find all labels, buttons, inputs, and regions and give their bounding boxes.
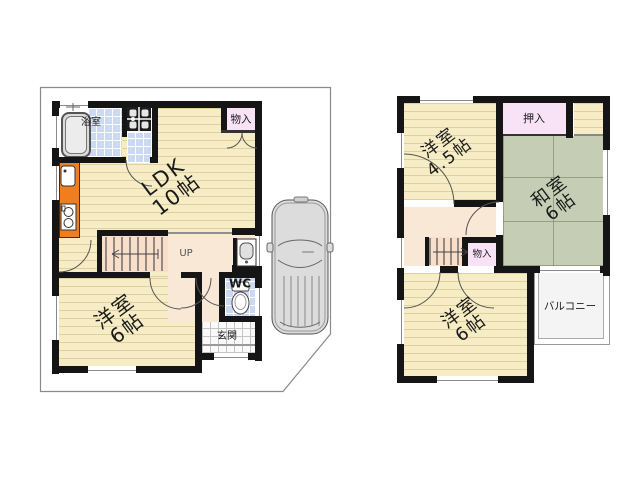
wall xyxy=(233,238,237,268)
window-mark xyxy=(60,101,88,108)
wall xyxy=(462,237,503,243)
wall xyxy=(600,266,610,273)
wall xyxy=(181,272,195,278)
window-mark xyxy=(52,296,59,340)
wall xyxy=(219,316,262,322)
window-mark xyxy=(603,150,610,215)
window-mark xyxy=(420,96,473,103)
window-mark xyxy=(397,238,404,268)
bathroom-tile xyxy=(88,108,122,157)
window-mark xyxy=(52,166,59,200)
closet-line xyxy=(503,134,566,136)
window-mark xyxy=(255,236,262,266)
wall xyxy=(496,96,503,202)
wall xyxy=(232,228,262,235)
label-genkan: 玄関 xyxy=(217,332,237,343)
floorplan: LDK 10帖 洋室 6帖 浴室 物入 WC UP 玄関 xyxy=(0,0,635,480)
wall xyxy=(152,101,158,163)
genkan-step-line xyxy=(202,344,255,346)
balcony-door-mark xyxy=(540,266,600,273)
wall xyxy=(527,266,534,383)
window-mark xyxy=(52,116,59,148)
counter-line xyxy=(168,232,232,234)
window-mark xyxy=(397,300,404,344)
wall xyxy=(232,265,262,272)
stairs-2f xyxy=(429,237,462,266)
niche-line xyxy=(574,134,603,136)
wall xyxy=(52,272,150,278)
wall xyxy=(219,272,225,322)
window-mark xyxy=(437,376,498,383)
kitchen-counter xyxy=(59,160,80,238)
stairs-1f xyxy=(102,236,168,272)
washroom-tile xyxy=(127,133,152,163)
label-balcony: バルコニー xyxy=(544,301,596,312)
window-mark xyxy=(88,366,136,373)
label-up: UP xyxy=(179,249,192,260)
wall xyxy=(97,230,168,236)
wall xyxy=(566,96,573,138)
window-mark xyxy=(255,288,262,316)
wall xyxy=(97,230,102,272)
label-storage-1f: 物入 xyxy=(231,114,252,125)
car-top-view xyxy=(267,197,333,334)
closet-line xyxy=(221,130,255,133)
window-mark xyxy=(397,133,404,168)
entrance-door-mark xyxy=(214,353,248,360)
label-storage-2f: 物入 xyxy=(472,250,491,260)
tokonoma-niche xyxy=(574,103,603,134)
wall xyxy=(122,101,127,137)
wall xyxy=(52,157,126,163)
label-wc: WC xyxy=(229,278,251,291)
wall xyxy=(195,272,202,373)
label-bath: 浴室 xyxy=(81,118,101,129)
label-oshiire: 押入 xyxy=(523,113,545,125)
wall xyxy=(440,266,458,273)
wall xyxy=(425,237,429,266)
wall xyxy=(454,200,496,207)
